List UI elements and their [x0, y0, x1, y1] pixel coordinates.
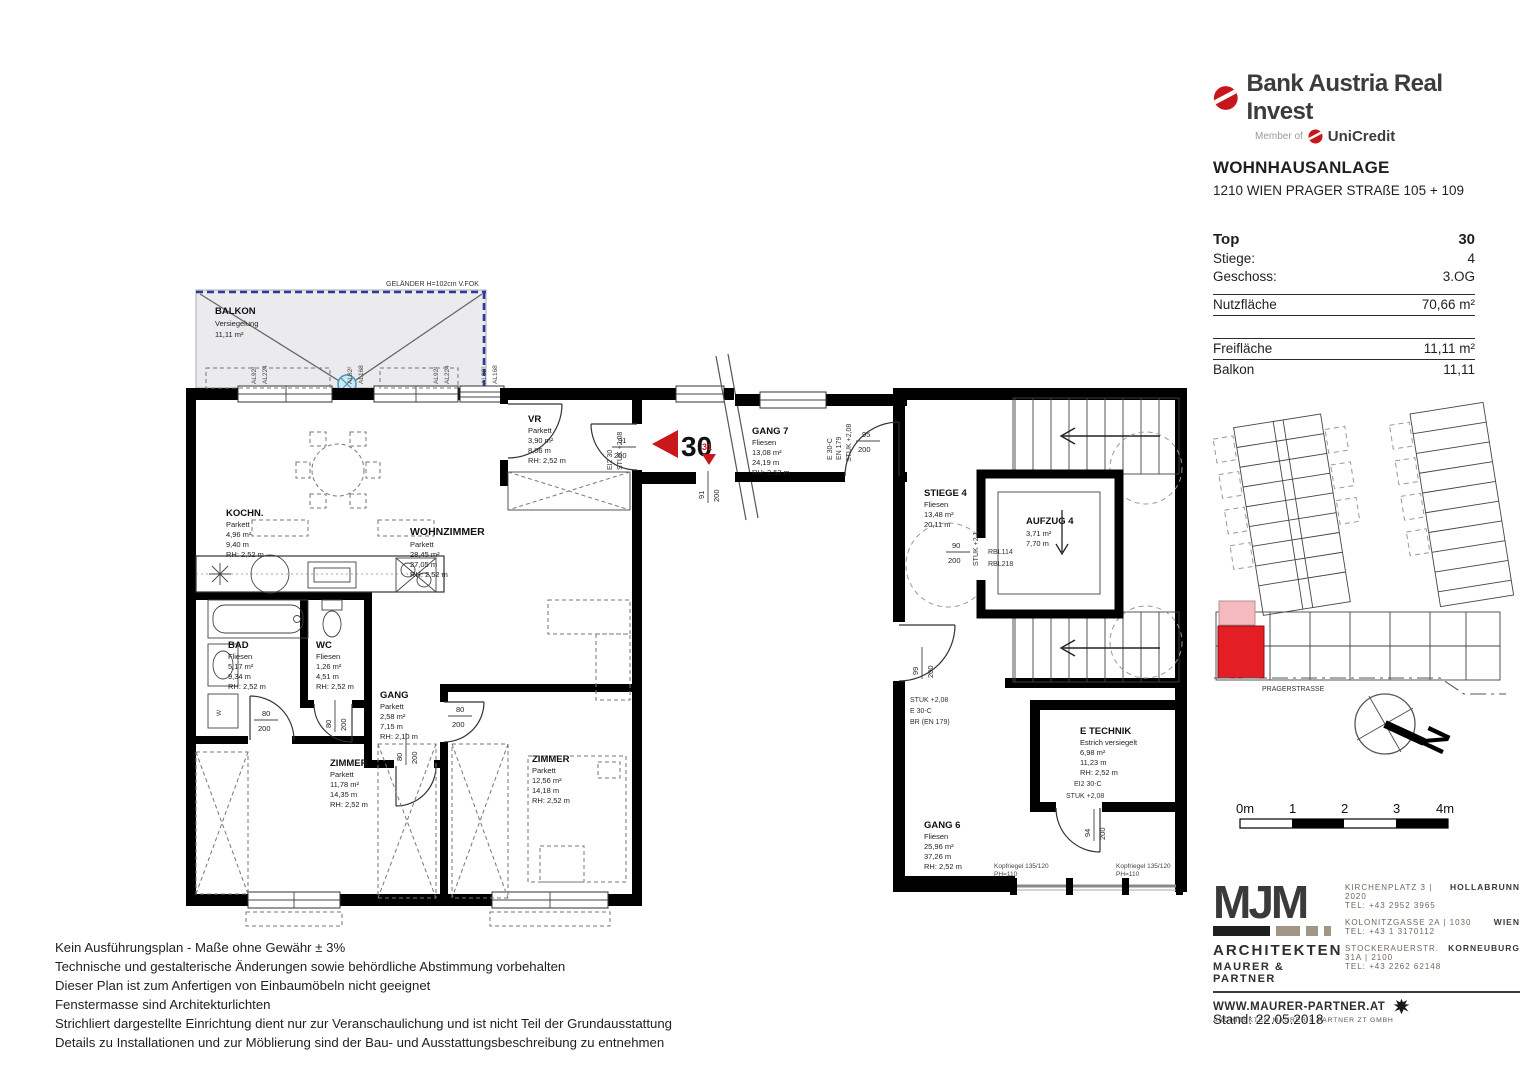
architects-partners: MAURER & PARTNER	[1213, 961, 1331, 985]
plan-date: Stand: 22.05.2018	[1213, 1012, 1323, 1027]
svg-text:AL82²: AL82²	[481, 366, 488, 384]
svg-text:9,40 m: 9,40 m	[226, 540, 249, 549]
svg-text:200: 200	[858, 445, 871, 454]
dining-table	[296, 432, 380, 508]
svg-text:91: 91	[618, 436, 626, 445]
stairwell-walls	[735, 388, 1187, 892]
scale-bar: 0m 1 2 3 4m	[1236, 801, 1454, 828]
svg-text:13,08 m²: 13,08 m²	[752, 448, 782, 457]
svg-text:BALKON: BALKON	[215, 306, 256, 317]
corridor-railing	[1010, 878, 1183, 895]
disclaimer-line: Kein Ausführungsplan - Maße ohne Gewähr …	[55, 938, 715, 957]
svg-text:Fliesen: Fliesen	[924, 832, 948, 841]
svg-text:Kopfriegel 135/120: Kopfriegel 135/120	[1116, 863, 1171, 870]
svg-text:RH: 2,52 m: RH: 2,52 m	[1080, 768, 1118, 777]
svg-text:RH: 2,52 m: RH: 2,52 m	[228, 682, 266, 691]
svg-text:5,17 m²: 5,17 m²	[228, 662, 254, 671]
unicredit-icon	[1308, 129, 1323, 144]
website-link[interactable]: WWW.MAURER-PARTNER.AT	[1213, 1001, 1385, 1013]
member-of-label: Member of	[1255, 131, 1303, 142]
architects-block: MJM ARCHITEKTEN MAURER & PARTNER KIRCHEN…	[1213, 882, 1520, 1024]
svg-text:24,19 m: 24,19 m	[752, 458, 779, 467]
stove-icon	[308, 562, 356, 588]
apartment-walls	[186, 368, 734, 926]
apartment-interior-walls	[186, 388, 642, 906]
svg-text:Parkett: Parkett	[410, 540, 435, 549]
svg-text:STUK +2,08: STUK +2,08	[846, 424, 853, 462]
svg-text:90: 90	[952, 541, 960, 550]
project-address: 1210 WIEN PRAGER STRAßE 105 + 109	[1213, 183, 1475, 198]
highlighted-unit	[1218, 626, 1264, 678]
svg-text:200: 200	[339, 718, 348, 731]
svg-text:9,34 m: 9,34 m	[228, 672, 251, 681]
svg-text:RH: 2,52 m: RH: 2,52 m	[528, 456, 566, 465]
washing-machine-icon	[208, 694, 238, 728]
svg-text:13,48 m²: 13,48 m²	[924, 510, 954, 519]
svg-text:80: 80	[395, 753, 404, 761]
svg-text:GANG 7: GANG 7	[752, 426, 788, 437]
svg-text:RH: 2,52 m: RH: 2,52 m	[316, 682, 354, 691]
stiege-value: 4	[1467, 250, 1475, 268]
eagle-emblem-icon	[1393, 998, 1410, 1015]
svg-text:4m: 4m	[1436, 801, 1454, 816]
svg-text:11,78 m²: 11,78 m²	[330, 780, 360, 789]
freiflaeche-value: 11,11 m²	[1424, 340, 1475, 358]
compass: N	[1355, 694, 1457, 759]
svg-text:12,56 m²: 12,56 m²	[532, 776, 562, 785]
north-label: N	[1413, 721, 1458, 759]
svg-text:14,35 m: 14,35 m	[330, 790, 357, 799]
neighbor-unit-number: 31	[702, 442, 712, 452]
svg-text:E TECHNIK: E TECHNIK	[1080, 726, 1131, 737]
svg-text:KOCHN.: KOCHN.	[226, 508, 263, 519]
svg-text:RH: 2,52 m: RH: 2,52 m	[410, 570, 448, 579]
office-entry: KOLONITZGASSE 2A | 1030 WIEN TEL: +43 1 …	[1345, 917, 1520, 936]
svg-text:200: 200	[410, 751, 419, 764]
svg-text:1: 1	[1289, 801, 1296, 816]
svg-text:AUFZUG 4: AUFZUG 4	[1026, 516, 1074, 527]
svg-text:200: 200	[712, 489, 721, 502]
svg-text:WC: WC	[316, 640, 332, 651]
svg-text:3,90 m²: 3,90 m²	[528, 436, 554, 445]
disclaimer-line: Fenstermasse sind Architekturlichten	[55, 995, 715, 1014]
svg-text:AL168: AL168	[492, 365, 499, 384]
svg-text:37,26 m: 37,26 m	[924, 852, 951, 861]
svg-text:Parkett: Parkett	[226, 520, 251, 529]
svg-text:GANG 6: GANG 6	[924, 820, 960, 831]
top-label: Top	[1213, 230, 1239, 250]
svg-text:200: 200	[614, 451, 627, 460]
elevator: AUFZUG 4 3,71 m² 7,70 m	[975, 474, 1119, 614]
office-entry: KIRCHENPLATZ 3 | 2020 HOLLABRUNN TEL: +4…	[1345, 882, 1520, 910]
svg-text:0m: 0m	[1236, 801, 1254, 816]
svg-text:Versiegelung: Versiegelung	[215, 319, 258, 328]
disclaimer-line: Technische und gestalterische Änderungen…	[55, 957, 715, 976]
street-label: PRAGERSTRASSE	[1262, 686, 1325, 693]
svg-text:EI2 30: EI2 30	[607, 450, 614, 470]
svg-text:RH: 2,52 m: RH: 2,52 m	[330, 800, 368, 809]
office-entry: STOCKERAUERSTR. 31A | 2100 KORNEUBURG TE…	[1345, 943, 1520, 971]
brand-name: Bank Austria Real Invest	[1247, 70, 1475, 126]
svg-text:4,51 m: 4,51 m	[316, 672, 339, 681]
svg-text:WOHNZIMMER: WOHNZIMMER	[410, 526, 485, 538]
svg-text:ZIMMER: ZIMMER	[532, 754, 570, 765]
svg-text:Parkett: Parkett	[528, 426, 553, 435]
room-labels-apartment: VR Parkett 3,90 m² 8,06 m RH: 2,52 m KOC…	[226, 414, 570, 809]
plan-break-lines	[716, 354, 758, 520]
unicredit-label: UniCredit	[1328, 128, 1396, 145]
svg-text:1,26 m²: 1,26 m²	[316, 662, 342, 671]
disclaimer-line: Strichliert dargestellte Einrichtung die…	[55, 1014, 715, 1033]
svg-text:AL168: AL168	[358, 365, 365, 384]
highlighted-balcony	[1219, 601, 1255, 625]
svg-text:VR: VR	[528, 414, 541, 425]
svg-text:STUK +2,08: STUK +2,08	[910, 697, 948, 704]
svg-text:20,11 m: 20,11 m	[924, 520, 951, 529]
svg-text:2: 2	[1341, 801, 1348, 816]
svg-text:PH=110: PH=110	[1116, 871, 1140, 878]
divider	[1213, 991, 1520, 993]
svg-text:200: 200	[948, 556, 961, 565]
svg-text:RH: 2,10 m: RH: 2,10 m	[380, 732, 418, 741]
svg-text:200: 200	[1098, 827, 1107, 840]
svg-text:14,18 m: 14,18 m	[532, 786, 559, 795]
svg-text:80: 80	[456, 705, 464, 714]
balcony: BALKON Versiegelung 11,11 m² GELÄNDER H=…	[196, 280, 486, 393]
svg-text:80: 80	[324, 720, 333, 728]
svg-text:Fliesen: Fliesen	[228, 652, 252, 661]
architects-word: ARCHITEKTEN	[1213, 942, 1331, 959]
svg-text:7,15 m: 7,15 m	[380, 722, 403, 731]
site-plan: PRAGERSTRASSE	[1212, 402, 1514, 694]
svg-text:3,71 m²: 3,71 m²	[1026, 529, 1052, 538]
svg-text:AL224: AL224	[262, 365, 269, 384]
svg-text:STIEGE 4: STIEGE 4	[924, 488, 967, 499]
svg-text:GANG: GANG	[380, 690, 409, 701]
disclaimer-line: Details zu Installationen und zur Möblie…	[55, 1033, 715, 1052]
svg-text:STUK +2,08: STUK +2,08	[1066, 793, 1104, 800]
svg-text:Parkett: Parkett	[532, 766, 557, 775]
svg-text:RH: 2,52 m: RH: 2,52 m	[532, 796, 570, 805]
svg-text:200: 200	[926, 665, 935, 678]
unit-info-panel: Top 30 Stiege: 4 Geschoss: 3.OG Nutzfläc…	[1213, 230, 1475, 380]
svg-text:27,05 m: 27,05 m	[410, 560, 437, 569]
svg-text:7,70 m: 7,70 m	[1026, 539, 1049, 548]
svg-text:EI2 30-C: EI2 30-C	[1074, 781, 1102, 788]
svg-text:AL92²: AL92²	[251, 366, 258, 384]
svg-text:28,45 m²: 28,45 m²	[410, 550, 440, 559]
svg-text:3: 3	[1393, 801, 1400, 816]
svg-text:RBL114: RBL114	[988, 549, 1013, 556]
svg-text:99: 99	[911, 667, 920, 675]
svg-text:25,96 m²: 25,96 m²	[924, 842, 954, 851]
svg-text:Parkett: Parkett	[330, 770, 355, 779]
geschoss-value: 3.OG	[1443, 268, 1475, 286]
svg-text:Kopfriegel 135/120: Kopfriegel 135/120	[994, 863, 1049, 870]
svg-text:PH=110: PH=110	[994, 871, 1018, 878]
disclaimer: Kein Ausführungsplan - Maße ohne Gewähr …	[55, 938, 715, 1052]
svg-text:BR (EN 179): BR (EN 179)	[910, 719, 950, 726]
mjm-logo: MJM	[1213, 882, 1331, 922]
disclaimer-line: Dieser Plan ist zum Anfertigen von Einba…	[55, 976, 715, 995]
svg-text:200: 200	[452, 720, 465, 729]
svg-text:91: 91	[697, 491, 706, 499]
svg-text:BAD: BAD	[228, 640, 249, 651]
project-header: WOHNHAUSANLAGE 1210 WIEN PRAGER STRAßE 1…	[1213, 158, 1475, 198]
bank-austria-logo: Bank Austria Real Invest Member of UniCr…	[1213, 70, 1475, 145]
svg-text:E 30-C: E 30-C	[910, 708, 932, 715]
svg-text:AL224: AL224	[444, 365, 451, 384]
project-title: WOHNHAUSANLAGE	[1213, 158, 1475, 178]
svg-text:Estrich versiegelt: Estrich versiegelt	[1080, 738, 1138, 747]
svg-text:Fliesen: Fliesen	[752, 438, 776, 447]
svg-text:11,23 m: 11,23 m	[1080, 758, 1107, 767]
nutzflaeche-label: Nutzfläche	[1213, 296, 1277, 314]
svg-text:2,58 m²: 2,58 m²	[380, 712, 406, 721]
balkon-value: 11,11	[1443, 361, 1475, 379]
svg-text:Fliesen: Fliesen	[316, 652, 340, 661]
svg-text:W: W	[216, 709, 223, 716]
svg-text:E 30-C: E 30-C	[827, 438, 834, 460]
svg-text:STUK +2,1: STUK +2,1	[973, 531, 980, 566]
svg-text:ZIMMER: ZIMMER	[330, 758, 368, 769]
svg-text:11,11 m²: 11,11 m²	[215, 330, 244, 339]
unit-markers: 30 31 91 200	[652, 430, 721, 503]
freiflaeche-label: Freifläche	[1213, 340, 1272, 358]
sink-star-icon	[209, 563, 231, 585]
svg-text:AL82²: AL82²	[347, 366, 354, 384]
svg-text:RH: 2,52 m: RH: 2,52 m	[226, 550, 264, 559]
svg-text:94: 94	[1083, 829, 1092, 837]
svg-text:Fliesen: Fliesen	[924, 500, 948, 509]
balkon-label: Balkon	[1213, 361, 1254, 379]
bank-austria-icon	[1213, 83, 1239, 113]
svg-text:RH: 2,52 m: RH: 2,52 m	[924, 862, 962, 871]
nutzflaeche-value: 70,66 m²	[1422, 296, 1475, 314]
bathtub-icon	[208, 600, 308, 638]
svg-text:RBL218: RBL218	[988, 561, 1013, 568]
svg-text:8,06 m: 8,06 m	[528, 446, 551, 455]
svg-text:RH: 2,52 m: RH: 2,52 m	[752, 468, 790, 477]
svg-text:AL92²: AL92²	[433, 366, 440, 384]
svg-text:Parkett: Parkett	[380, 702, 405, 711]
unit-arrow-icon	[652, 430, 678, 458]
stiege-label: Stiege:	[1213, 250, 1255, 268]
svg-text:4,96 m²: 4,96 m²	[226, 530, 252, 539]
svg-text:200: 200	[258, 724, 271, 733]
top-value: 30	[1458, 230, 1475, 250]
geschoss-label: Geschoss:	[1213, 268, 1277, 286]
railing-note: GELÄNDER H=102cm V.FOK	[386, 280, 479, 288]
toilet-icon	[322, 600, 342, 610]
svg-text:95: 95	[862, 430, 870, 439]
svg-text:6,98 m²: 6,98 m²	[1080, 748, 1106, 757]
svg-text:EN 179: EN 179	[836, 437, 843, 460]
svg-text:80: 80	[262, 709, 270, 718]
